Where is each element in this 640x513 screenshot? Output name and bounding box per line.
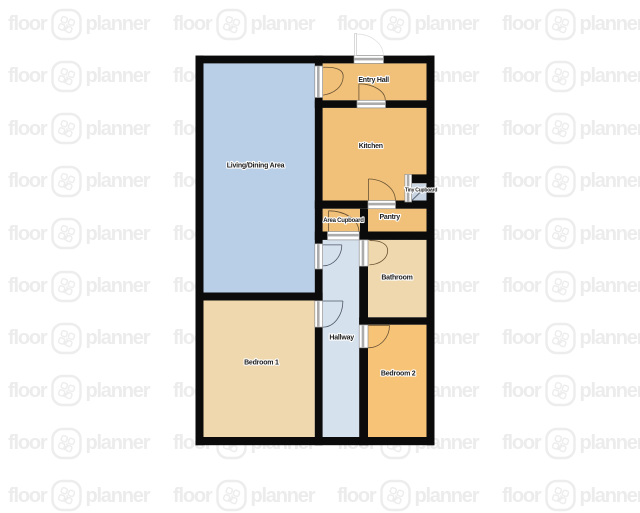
svg-text:Pantry: Pantry (379, 214, 400, 221)
svg-text:Entry Hall: Entry Hall (358, 77, 389, 84)
svg-text:Hallway: Hallway (329, 334, 354, 341)
svg-text:Kitchen: Kitchen (359, 143, 383, 150)
svg-text:Living/Dining Area: Living/Dining Area (227, 163, 285, 170)
svg-text:Area Cupboard: Area Cupboard (323, 218, 364, 224)
svg-text:Tiny Cupboard: Tiny Cupboard (405, 188, 437, 194)
svg-text:Bedroom 1: Bedroom 1 (244, 359, 279, 366)
svg-text:Bedroom 2: Bedroom 2 (381, 371, 416, 378)
svg-text:Bathroom: Bathroom (381, 275, 412, 282)
